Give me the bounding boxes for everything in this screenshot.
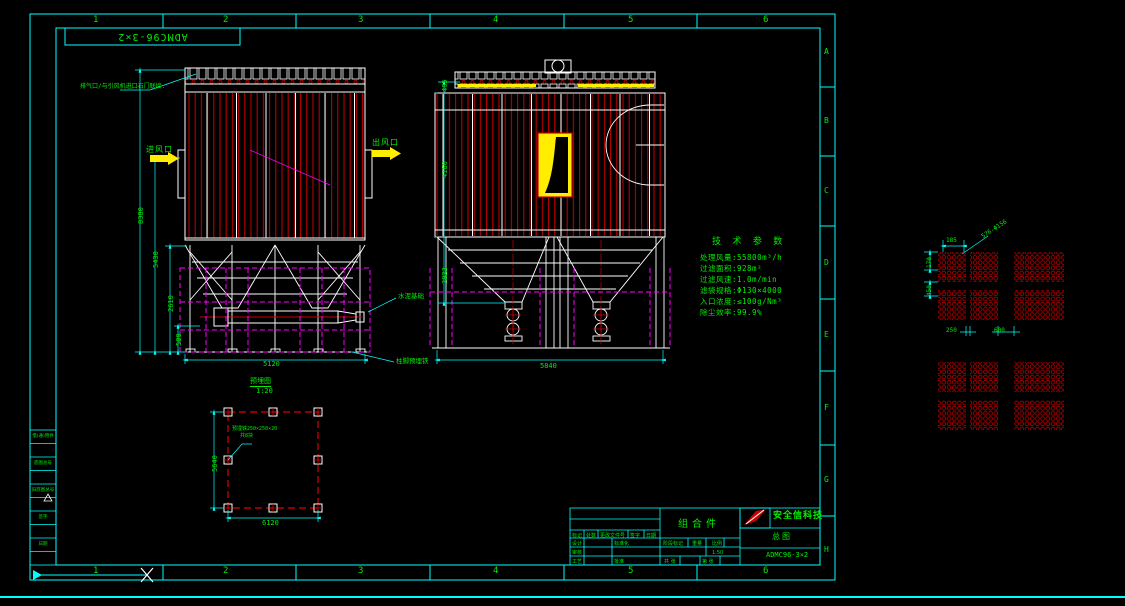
tech-param-bag-spec: 滤袋规格:Φ130×4000 xyxy=(700,287,782,295)
dim-side-width: 5840 xyxy=(540,363,557,370)
part-name: 组合件 xyxy=(678,520,720,530)
tube-sheet-dimensions xyxy=(924,236,1020,336)
grid-col-5-top: 5 xyxy=(628,16,633,25)
strip-date: 日期 xyxy=(31,538,55,552)
yellow-beam xyxy=(458,84,536,87)
cad-drawing-sheet: 1 2 3 4 5 6 1 2 3 4 5 6 A B C D E F G H … xyxy=(0,0,1125,606)
strip-sign: 签字 xyxy=(31,511,55,525)
grid-col-3-bottom: 3 xyxy=(358,567,363,576)
th-count: 处数 xyxy=(586,532,596,539)
plan-title: 预埋图 xyxy=(250,378,271,387)
th-date: 日期 xyxy=(646,532,656,539)
dim-side-top: 405 xyxy=(442,79,449,92)
grid-col-5-bottom: 5 xyxy=(628,567,633,576)
grid-col-4-bottom: 4 xyxy=(493,567,498,576)
role-audit: 审核 xyxy=(572,549,582,556)
strip-blank-3 xyxy=(31,498,55,512)
scale-label: 比例 xyxy=(712,540,722,547)
access-door xyxy=(538,133,572,197)
grid-row-g: G xyxy=(824,476,829,484)
dim-plan-height: 5640 xyxy=(212,455,219,472)
scale-value: 1:50 xyxy=(712,550,723,556)
grid-col-6-top: 6 xyxy=(763,16,768,25)
drawing-number: ADMC96-3×2 xyxy=(766,552,808,559)
grid-row-c: C xyxy=(824,187,829,195)
dim-hole-gap-1: 250 xyxy=(946,328,957,334)
strip-blank-2 xyxy=(31,471,55,485)
side-foundation-outline xyxy=(430,268,670,348)
dim-front-base: 500 xyxy=(176,333,183,346)
plan-note-line2: 共8块 xyxy=(240,434,253,439)
dim-hole-pitch-v: 170 xyxy=(927,257,933,268)
grid-row-e: E xyxy=(824,331,829,339)
grid-row-f: F xyxy=(824,404,829,412)
stage-label: 阶段标记 xyxy=(663,540,683,547)
grid-col-2-bottom: 2 xyxy=(223,567,228,576)
th-mark: 标记 xyxy=(572,532,582,539)
strip-old-master-no: 旧底图总号 xyxy=(31,484,55,498)
strip-blank-5 xyxy=(31,552,55,566)
company-name: 安全信科技 xyxy=(773,512,823,521)
tech-param-efficiency: 除尘效率:99.9% xyxy=(700,309,762,317)
anchor-plates xyxy=(224,408,322,512)
tech-param-filter-area: 过滤面积:928m² xyxy=(700,265,762,273)
screw-conveyor xyxy=(200,308,364,326)
dim-front-inlet-height: 5430 xyxy=(153,251,160,268)
strip-blank-1 xyxy=(31,444,55,458)
dim-side-body: 4160 xyxy=(442,161,449,178)
foundation-label: 水泥基础 xyxy=(398,293,424,300)
flow-arrows xyxy=(0,0,430,200)
strip-master-no: 底图总号 xyxy=(31,457,55,471)
strip-borrow-record: 借(通)用件登记 xyxy=(31,430,55,444)
grid-col-6-bottom: 6 xyxy=(763,567,768,576)
sheets-total: 共 张 xyxy=(664,558,676,565)
doc-type: 总图 xyxy=(772,533,792,541)
dim-hole-pitch-h: 185 xyxy=(946,238,957,244)
rotary-valves xyxy=(505,302,610,341)
grid-row-h: H xyxy=(824,546,829,554)
dim-front-width: 5120 xyxy=(263,361,280,368)
tech-param-inlet-conc: 入口浓度:≤100g/Nm³ xyxy=(700,298,782,306)
weight-label: 重量 xyxy=(692,540,702,547)
plan-note-line1: 预埋铁250×250×20 xyxy=(232,427,277,432)
anchor-label: 柱脚预埋铁 xyxy=(396,358,429,365)
dim-plan-width: 6120 xyxy=(262,520,279,527)
tech-params-title: 技 术 参 数 xyxy=(712,238,785,247)
company-logo xyxy=(744,509,766,525)
th-sign: 签字 xyxy=(630,532,640,539)
role-design: 设计 xyxy=(572,540,582,547)
dim-front-hopper-height: 2610 xyxy=(168,295,175,312)
dim-side-hopper: 2023 xyxy=(442,267,449,284)
tech-param-velocity: 过滤风速:1.0m/min xyxy=(700,276,777,284)
side-view xyxy=(430,60,670,364)
grid-row-a: A xyxy=(824,48,829,56)
plan-scale: 1:20 xyxy=(256,388,273,395)
role-process: 工艺 xyxy=(572,558,582,565)
role-standard: 标准化 xyxy=(614,540,629,547)
outlet-arrow-icon xyxy=(372,147,401,160)
sheet-number: 第 张 xyxy=(702,558,714,565)
dim-hole-gap-2: 600 xyxy=(994,328,1005,334)
dim-front-total-height: 8380 xyxy=(138,207,145,224)
tech-param-airflow: 处理风量:55800m³/h xyxy=(700,254,782,262)
inlet-arrow-icon xyxy=(150,152,179,165)
th-change-doc: 更改文件号 xyxy=(600,532,625,539)
dim-hole-gap-v: 450 xyxy=(927,285,933,296)
strip-blank-4 xyxy=(31,525,55,539)
grid-col-1-bottom: 1 xyxy=(93,567,98,576)
grid-row-b: B xyxy=(824,117,829,125)
role-approve: 批准 xyxy=(614,558,624,565)
grid-row-d: D xyxy=(824,259,829,267)
grid-col-4-top: 4 xyxy=(493,16,498,25)
